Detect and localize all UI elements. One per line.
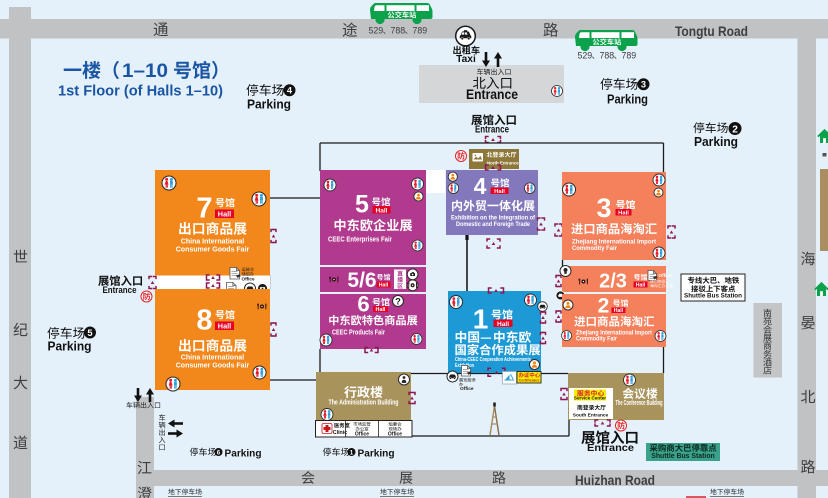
svg-text:3: 3 (596, 193, 611, 223)
svg-text:Tongtu Road: Tongtu Road (675, 24, 748, 39)
svg-text:1: 1 (350, 449, 354, 456)
svg-text:Office: Office (659, 273, 672, 278)
svg-text:6: 6 (217, 449, 221, 456)
svg-text:529: 529 (578, 51, 593, 61)
svg-text:Office: Office (242, 277, 255, 282)
svg-text:1–10: 1–10 (122, 61, 168, 82)
svg-text:Office: Office (355, 431, 369, 437)
svg-text:Hall: Hall (636, 283, 646, 289)
svg-text:Hall: Hall (379, 283, 389, 289)
svg-text:6: 6 (357, 292, 369, 317)
svg-text:Office: Office (460, 386, 474, 392)
svg-text:4: 4 (287, 86, 293, 96)
svg-text:5/6: 5/6 (347, 269, 376, 292)
svg-text:Hall: Hall (494, 189, 505, 195)
svg-text:Office: Office (388, 431, 402, 437)
svg-text:Clinic: Clinic (333, 430, 347, 436)
svg-text:788: 788 (600, 51, 615, 61)
svg-text:Entrance: Entrance (466, 87, 518, 102)
svg-text:China-CEEC Cooperation Achieve: China-CEEC Cooperation Achievements (455, 357, 531, 363)
svg-text:China International: China International (181, 239, 244, 246)
svg-text:Certificates: Certificates (519, 379, 540, 383)
svg-text:5: 5 (87, 328, 92, 338)
svg-text:788: 788 (391, 26, 406, 36)
svg-text:Parking: Parking (48, 339, 92, 354)
svg-text:Entrance: Entrance (587, 442, 634, 454)
svg-text:Parking: Parking (607, 92, 648, 107)
svg-text:Consumer Goods Fair: Consumer Goods Fair (176, 247, 250, 254)
svg-text:1st Floor (of Halls 1–10): 1st Floor (of Halls 1–10) (58, 84, 223, 100)
svg-text:CEEC Enterprises Fair: CEEC Enterprises Fair (328, 234, 392, 243)
svg-text:Parking: Parking (225, 448, 262, 459)
svg-text:Hall: Hall (497, 321, 509, 328)
svg-text:1: 1 (473, 304, 489, 335)
svg-text:Entrance: Entrance (103, 285, 137, 295)
svg-text:CEEC Products Fair: CEEC Products Fair (332, 327, 385, 336)
svg-text:2: 2 (598, 295, 610, 318)
svg-text:8: 8 (196, 305, 212, 337)
svg-text:North Entrance: North Entrance (487, 161, 519, 166)
svg-text:The Administration Building: The Administration Building (329, 400, 399, 407)
svg-text:Commodity Fair: Commodity Fair (572, 245, 617, 252)
svg-text:Parking: Parking (694, 134, 738, 149)
svg-text:Hall: Hall (376, 307, 386, 313)
svg-text:Exhibition on the Integration: Exhibition on the Integration of (451, 216, 536, 222)
svg-text:Shuttle Bus Station: Shuttle Bus Station (651, 453, 715, 460)
svg-text:The Conference Building: The Conference Building (616, 400, 663, 407)
svg-text:Shuttle Bus Station: Shuttle Bus Station (684, 293, 742, 300)
svg-text:529: 529 (369, 26, 384, 36)
svg-text:Huizhan Road: Huizhan Road (575, 473, 655, 488)
svg-text:Hall: Hall (618, 211, 629, 217)
svg-text:China International: China International (181, 355, 244, 362)
svg-text:789: 789 (622, 51, 637, 61)
svg-text:Parking: Parking (247, 97, 291, 112)
svg-text:4: 4 (474, 173, 487, 199)
svg-text:Hall: Hall (614, 308, 624, 314)
svg-text:7: 7 (196, 193, 212, 225)
svg-text:Hall: Hall (218, 322, 231, 331)
svg-text:789: 789 (413, 26, 428, 36)
svg-text:3: 3 (641, 80, 646, 90)
svg-text:Service Center: Service Center (574, 396, 606, 401)
svg-text:Entrance: Entrance (475, 125, 509, 136)
svg-text:5: 5 (355, 191, 369, 219)
svg-text:Consumer Goods Fair: Consumer Goods Fair (176, 363, 250, 370)
svg-text:Domestic and Foreign Trade: Domestic and Foreign Trade (456, 222, 531, 228)
svg-text:Taxi: Taxi (456, 54, 476, 65)
svg-text:Hall: Hall (218, 210, 231, 219)
svg-text:Hall: Hall (376, 207, 388, 214)
svg-text:Parking: Parking (358, 448, 395, 459)
svg-text:?: ? (395, 296, 401, 306)
svg-text:2/3: 2/3 (599, 271, 627, 293)
svg-text:South Entrance: South Entrance (573, 412, 609, 418)
svg-text:Commodity Fair: Commodity Fair (576, 336, 617, 343)
